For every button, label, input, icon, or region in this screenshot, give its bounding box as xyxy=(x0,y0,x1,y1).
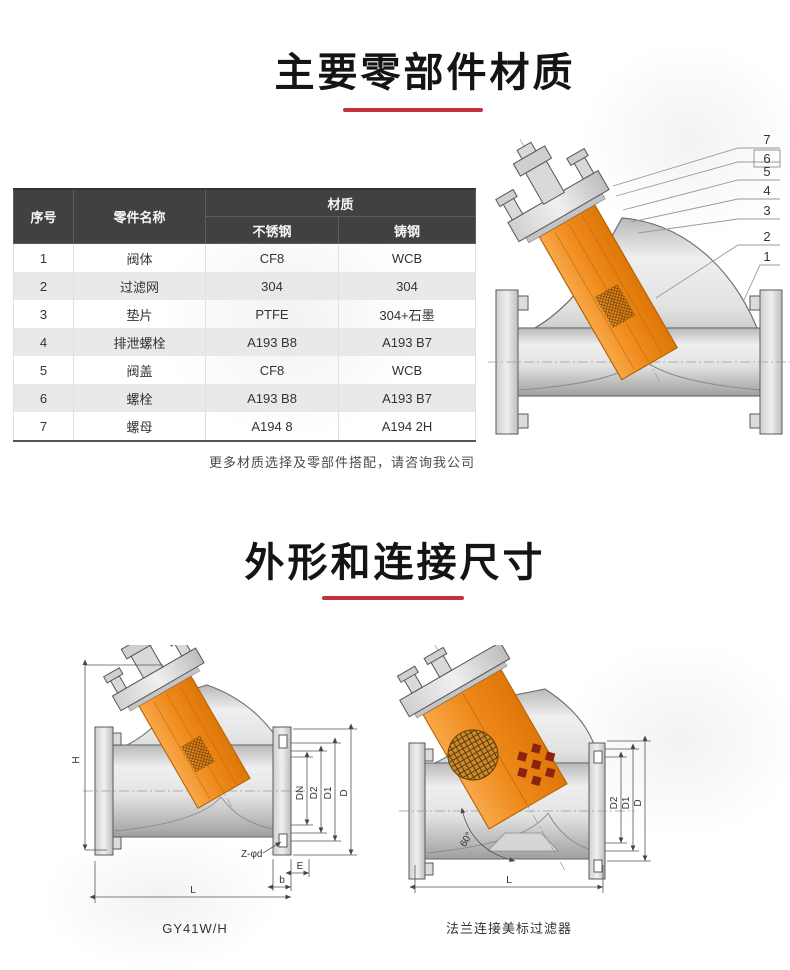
header-material: 材质 xyxy=(206,189,476,217)
cell-stainless: PTFE xyxy=(206,300,339,328)
cell-part: 阀体 xyxy=(74,244,206,273)
cell-cast: A194 2H xyxy=(339,412,476,441)
dim-d2: D2 xyxy=(609,796,620,809)
dimension-drawing-gy41wh: H DN D2 D1 D Z-φd E b L GY41W/H xyxy=(45,645,390,957)
bolt-hole xyxy=(594,751,602,763)
bolt-hole xyxy=(594,860,602,872)
cell-cast: WCB xyxy=(339,244,476,273)
dim-d1: D1 xyxy=(621,796,632,809)
cell-cast: 304 xyxy=(339,272,476,300)
cell-cast: A193 B7 xyxy=(339,328,476,356)
table-row: 5 阀盖 CF8 WCB xyxy=(14,356,476,384)
parts-diagram: 7 6 5 4 3 2 1 xyxy=(488,128,790,478)
cell-no: 6 xyxy=(14,384,74,412)
table-row: 7 螺母 A194 8 A194 2H xyxy=(14,412,476,441)
cell-part: 螺栓 xyxy=(74,384,206,412)
dim-d: D xyxy=(633,799,644,806)
cell-stainless: A193 B8 xyxy=(206,384,339,412)
dim-zd: Z-φd xyxy=(241,849,262,860)
dim-d1: D1 xyxy=(323,786,334,799)
table-row: 1 阀体 CF8 WCB xyxy=(14,244,476,273)
cell-cast: WCB xyxy=(339,356,476,384)
dim-d2: D2 xyxy=(309,786,320,799)
bolt-hole xyxy=(279,834,287,847)
header-stainless: 不锈钢 xyxy=(206,217,339,244)
header-part-name: 零件名称 xyxy=(74,189,206,244)
cell-stainless: A194 8 xyxy=(206,412,339,441)
product-page: { "section_materials": { "title": "主要零部件… xyxy=(0,0,790,957)
callout-2: 2 xyxy=(763,229,770,244)
drawing-caption: GY41W/H xyxy=(162,921,228,936)
callout-5: 5 xyxy=(763,164,770,179)
materials-table: 序号 零件名称 材质 不锈钢 铸钢 1 阀体 CF8 WCB 2 过滤网 304… xyxy=(13,188,476,442)
table-row: 2 过滤网 304 304 xyxy=(14,272,476,300)
dim-l: L xyxy=(506,875,512,886)
dim-h: H xyxy=(71,756,82,763)
cell-part: 阀盖 xyxy=(74,356,206,384)
cell-cast: A193 B7 xyxy=(339,384,476,412)
cell-cast: 304+石墨 xyxy=(339,300,476,328)
cell-no: 1 xyxy=(14,244,74,273)
dimension-drawing-ansi: 60° D2 D1 D L 法兰连接美标过滤器 xyxy=(393,645,788,957)
cell-no: 4 xyxy=(14,328,74,356)
table-row: 6 螺栓 A193 B8 A193 B7 xyxy=(14,384,476,412)
cell-no: 3 xyxy=(14,300,74,328)
drawing-caption: 法兰连接美标过滤器 xyxy=(446,921,572,936)
callout-1: 1 xyxy=(763,249,770,264)
cell-stainless: A193 B8 xyxy=(206,328,339,356)
callout-4: 4 xyxy=(763,183,770,198)
table-row: 4 排泄螺栓 A193 B8 A193 B7 xyxy=(14,328,476,356)
header-cast-steel: 铸钢 xyxy=(339,217,476,244)
dim-d: D xyxy=(339,789,350,796)
callout-3: 3 xyxy=(763,203,770,218)
cell-part: 过滤网 xyxy=(74,272,206,300)
table-note: 更多材质选择及零部件搭配，请咨询我公司 xyxy=(13,452,475,471)
cell-stainless: CF8 xyxy=(206,244,339,273)
cell-part: 垫片 xyxy=(74,300,206,328)
dim-e: E xyxy=(297,861,304,872)
title-underline xyxy=(322,596,464,600)
header-no: 序号 xyxy=(14,189,74,244)
bolt-hole xyxy=(279,735,287,748)
title-underline xyxy=(343,108,483,112)
dim-b: b xyxy=(279,875,285,886)
section-title-dimensions: 外形和连接尺寸 xyxy=(0,530,790,588)
cell-no: 5 xyxy=(14,356,74,384)
cell-stainless: 304 xyxy=(206,272,339,300)
cell-stainless: CF8 xyxy=(206,356,339,384)
cell-part: 排泄螺栓 xyxy=(74,328,206,356)
cell-no: 7 xyxy=(14,412,74,441)
cell-part: 螺母 xyxy=(74,412,206,441)
cell-no: 2 xyxy=(14,272,74,300)
table-row: 3 垫片 PTFE 304+石墨 xyxy=(14,300,476,328)
callout-7: 7 xyxy=(763,132,770,147)
dim-dn: DN xyxy=(295,786,306,800)
dim-l: L xyxy=(190,885,196,896)
section-title-materials: 主要零部件材质 xyxy=(0,40,790,98)
